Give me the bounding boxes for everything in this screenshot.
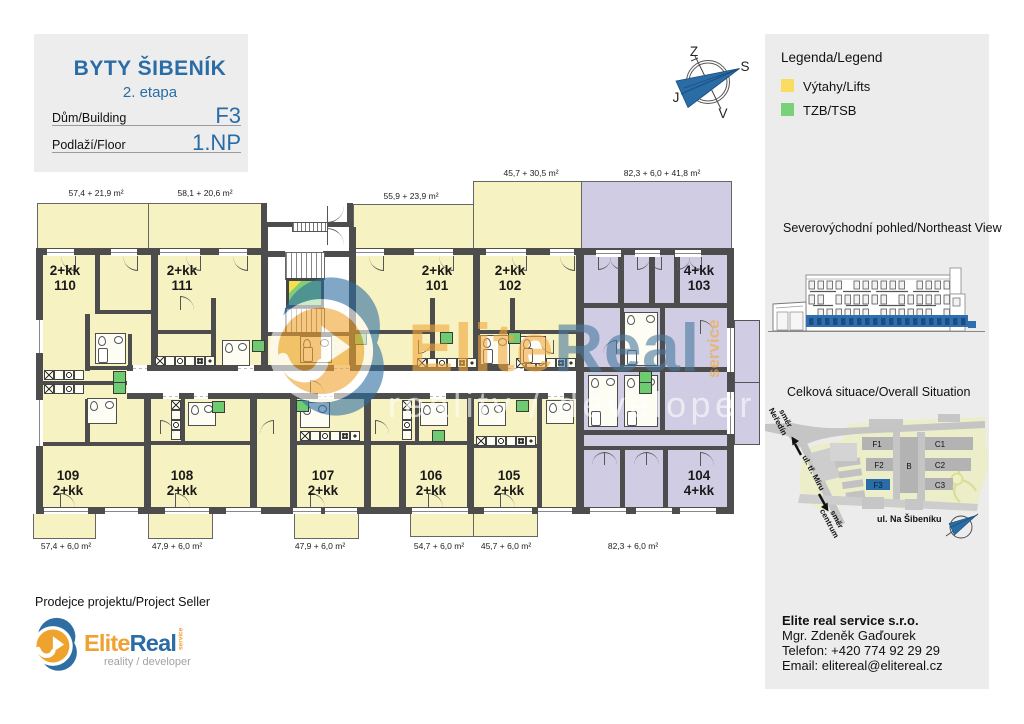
svg-text:EliteReal: EliteReal: [408, 310, 700, 386]
svg-text:service: service: [704, 319, 723, 378]
svg-text:reality / developer: reality / developer: [388, 384, 756, 425]
